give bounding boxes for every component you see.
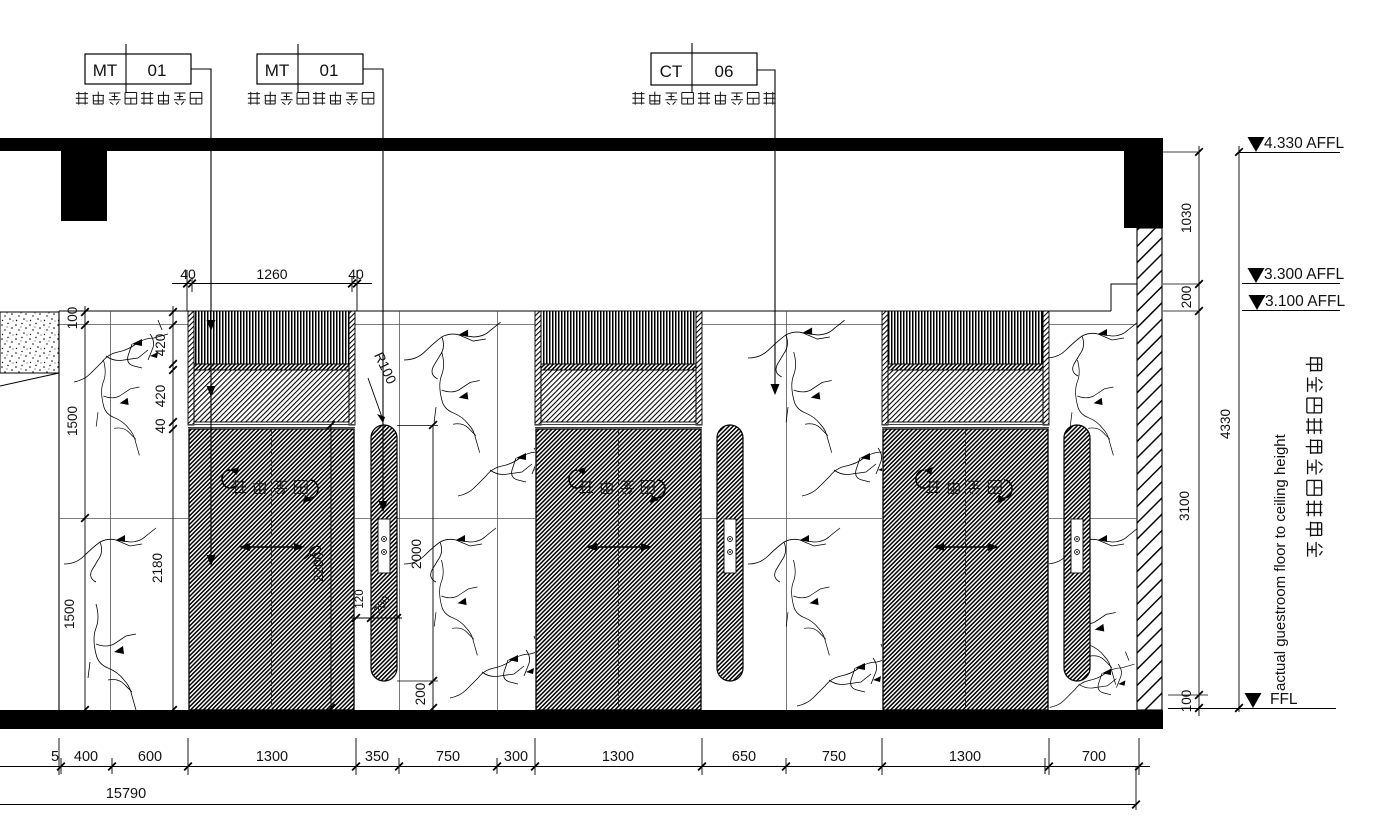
svg-text:MT: MT xyxy=(93,61,118,80)
svg-text:4.330 AFFL: 4.330 AFFL xyxy=(1264,135,1345,152)
svg-text:2000: 2000 xyxy=(409,539,424,569)
svg-text:1300: 1300 xyxy=(949,749,981,765)
svg-text:100: 100 xyxy=(65,307,80,330)
svg-text:1030: 1030 xyxy=(1179,203,1194,233)
svg-text:300: 300 xyxy=(504,749,528,765)
svg-text:06: 06 xyxy=(715,62,734,81)
svg-text:420: 420 xyxy=(153,334,168,357)
svg-text:1500: 1500 xyxy=(62,599,77,629)
svg-text:FFL: FFL xyxy=(1270,691,1298,708)
svg-text:01: 01 xyxy=(320,61,339,80)
svg-text:2180: 2180 xyxy=(150,553,165,583)
svg-text:750: 750 xyxy=(822,749,846,765)
svg-text:MT: MT xyxy=(265,61,290,80)
svg-text:400: 400 xyxy=(74,749,98,765)
svg-text:1300: 1300 xyxy=(256,749,288,765)
svg-text:350: 350 xyxy=(365,749,389,765)
svg-text:420: 420 xyxy=(153,385,168,408)
svg-text:15790: 15790 xyxy=(106,786,146,802)
svg-text:3.100 AFFL: 3.100 AFFL xyxy=(1265,293,1346,310)
svg-text:650: 650 xyxy=(732,749,756,765)
svg-text:3.300 AFFL: 3.300 AFFL xyxy=(1264,266,1345,283)
svg-text:600: 600 xyxy=(138,749,162,765)
svg-text:200: 200 xyxy=(1179,286,1194,309)
svg-text:40: 40 xyxy=(348,266,364,282)
svg-text:200: 200 xyxy=(413,683,428,706)
svg-text:CT: CT xyxy=(660,62,683,81)
svg-text:1500: 1500 xyxy=(65,406,80,436)
svg-text:2200: 2200 xyxy=(311,552,326,582)
svg-text:750: 750 xyxy=(436,749,460,765)
svg-text:5: 5 xyxy=(51,749,59,765)
svg-text:1300: 1300 xyxy=(602,749,634,765)
svg-text:1260: 1260 xyxy=(256,266,287,282)
svg-text:01: 01 xyxy=(148,61,167,80)
svg-text:700: 700 xyxy=(1082,749,1106,765)
svg-text:40: 40 xyxy=(153,418,168,433)
svg-text:120: 120 xyxy=(354,589,366,608)
svg-text:40: 40 xyxy=(180,266,196,282)
svg-text:3100: 3100 xyxy=(1177,491,1192,521)
svg-text:actual guestroom floor to ceil: actual guestroom floor to ceiling height xyxy=(1272,433,1289,691)
svg-text:4330: 4330 xyxy=(1218,409,1233,439)
